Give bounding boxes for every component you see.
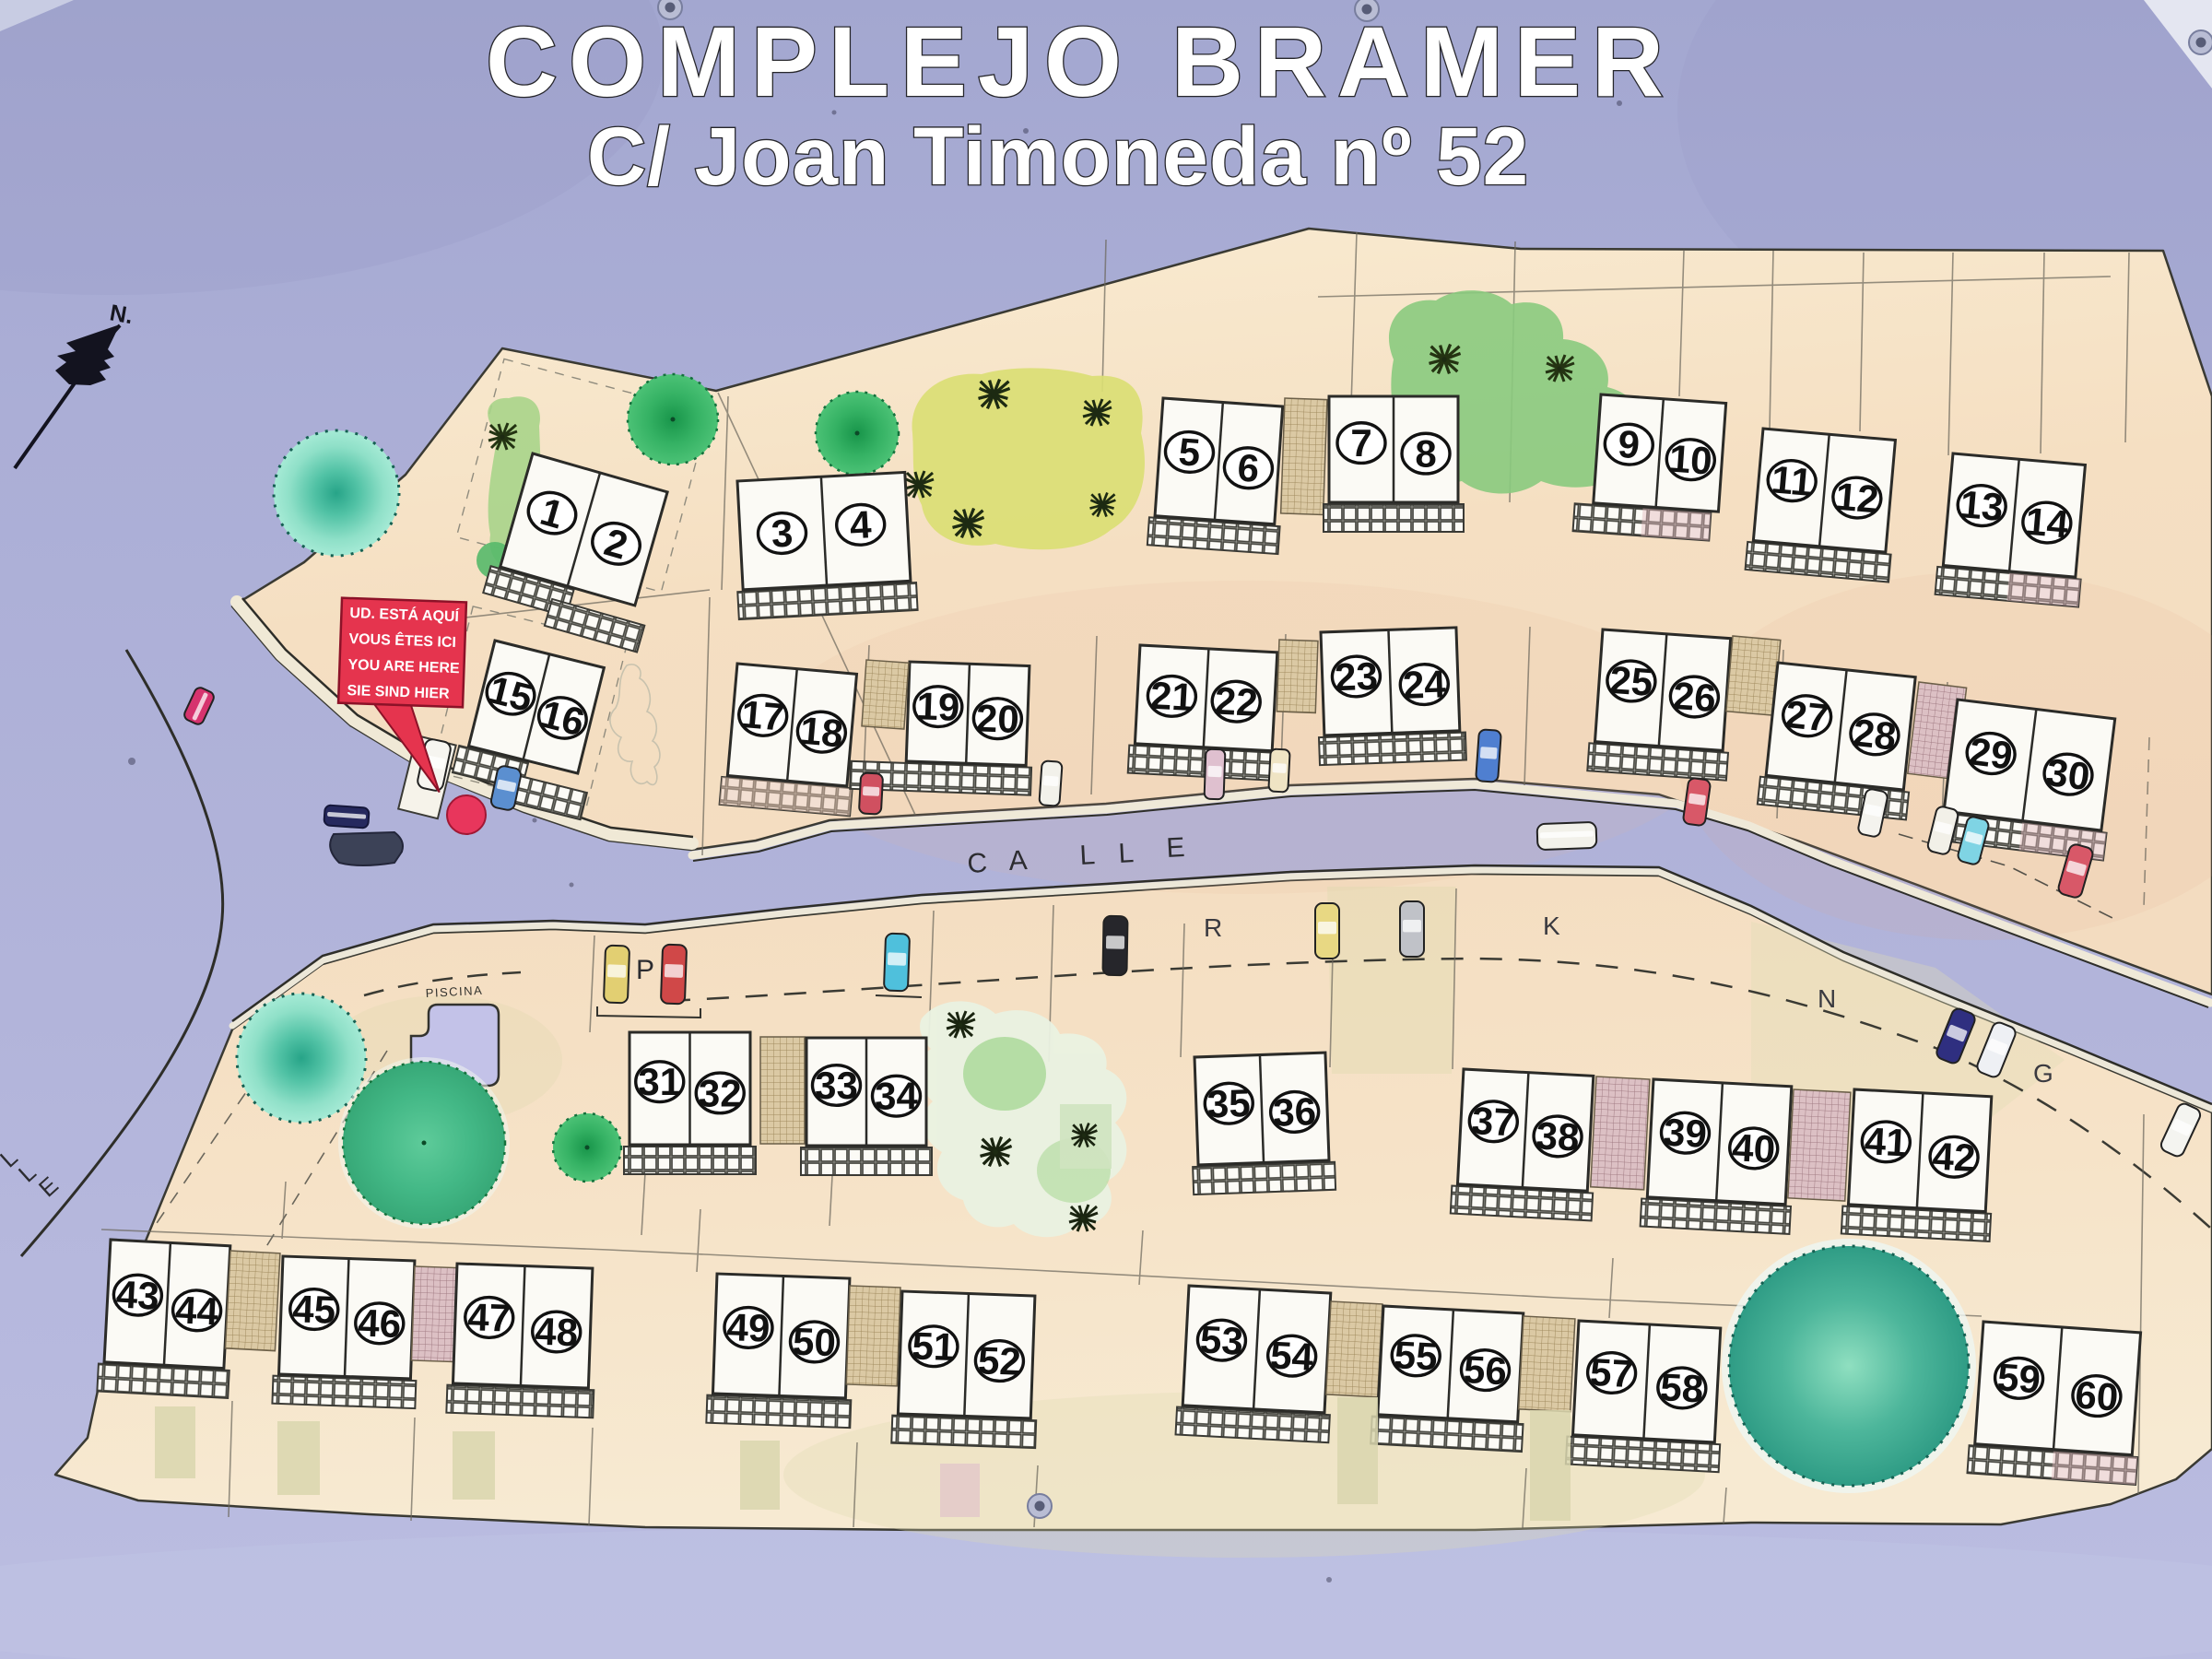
svg-text:58: 58 [1659, 1365, 1704, 1410]
svg-text:51: 51 [912, 1324, 956, 1369]
svg-text:7: 7 [1350, 421, 1371, 465]
svg-text:N.: N. [108, 300, 135, 329]
svg-text:G: G [2033, 1059, 2053, 1088]
svg-text:56: 56 [1463, 1347, 1508, 1393]
svg-text:21: 21 [1149, 674, 1194, 719]
svg-text:50: 50 [792, 1320, 836, 1365]
svg-text:52: 52 [977, 1338, 1021, 1383]
svg-text:33: 33 [815, 1064, 858, 1107]
svg-text:38: 38 [1535, 1113, 1581, 1159]
svg-text:28: 28 [1851, 711, 1898, 759]
svg-text:P: P [636, 955, 654, 985]
svg-text:24: 24 [1402, 662, 1447, 707]
svg-text:46: 46 [358, 1301, 402, 1347]
svg-text:26: 26 [1671, 674, 1717, 720]
svg-text:6: 6 [1236, 445, 1261, 490]
svg-text:53: 53 [1199, 1317, 1244, 1362]
svg-text:11: 11 [1770, 457, 1814, 504]
svg-text:19: 19 [916, 684, 960, 729]
svg-text:44: 44 [174, 1288, 220, 1333]
svg-text:49: 49 [726, 1305, 771, 1350]
svg-text:47: 47 [467, 1295, 512, 1340]
svg-text:K: K [1543, 912, 1560, 940]
svg-text:L: L [1079, 840, 1096, 871]
svg-text:20: 20 [975, 696, 1019, 741]
svg-text:9: 9 [1617, 422, 1641, 467]
svg-text:29: 29 [1967, 729, 2015, 777]
svg-text:C/ Joan Timoneda nº 52: C/ Joan Timoneda nº 52 [587, 110, 1529, 202]
svg-text:57: 57 [1589, 1350, 1634, 1395]
svg-text:R: R [1204, 913, 1222, 942]
svg-text:8: 8 [1415, 432, 1436, 476]
svg-text:C: C [967, 848, 988, 879]
svg-text:18: 18 [798, 709, 845, 756]
svg-text:23: 23 [1334, 654, 1378, 700]
svg-text:5: 5 [1177, 429, 1202, 475]
svg-text:12: 12 [1834, 475, 1881, 522]
svg-text:17: 17 [739, 692, 786, 739]
svg-text:55: 55 [1394, 1333, 1439, 1378]
svg-text:10: 10 [1667, 437, 1713, 483]
svg-text:42: 42 [1932, 1135, 1977, 1180]
svg-text:37: 37 [1471, 1099, 1516, 1144]
svg-text:22: 22 [1214, 678, 1259, 724]
svg-text:35: 35 [1206, 1081, 1251, 1126]
svg-text:COMPLEJO BRAMER: COMPLEJO BRAMER [486, 6, 1675, 117]
svg-text:60: 60 [2074, 1373, 2120, 1419]
svg-text:31: 31 [638, 1060, 681, 1103]
svg-text:A: A [1008, 845, 1029, 877]
svg-text:3: 3 [771, 511, 794, 555]
svg-text:59: 59 [1996, 1355, 2042, 1401]
svg-text:34: 34 [875, 1075, 918, 1118]
svg-text:39: 39 [1663, 1111, 1708, 1156]
svg-text:43: 43 [115, 1272, 160, 1317]
svg-text:30: 30 [2044, 750, 2092, 798]
svg-text:40: 40 [1731, 1125, 1776, 1171]
svg-text:E: E [1166, 832, 1186, 864]
svg-text:25: 25 [1608, 658, 1654, 704]
svg-text:41: 41 [1864, 1119, 1909, 1164]
svg-text:14: 14 [2024, 500, 2071, 547]
svg-text:45: 45 [292, 1287, 336, 1332]
svg-text:36: 36 [1272, 1089, 1316, 1135]
svg-text:L: L [1118, 838, 1135, 869]
svg-text:N: N [1818, 984, 1836, 1013]
svg-text:32: 32 [699, 1071, 742, 1114]
svg-text:54: 54 [1269, 1333, 1315, 1378]
svg-text:27: 27 [1783, 692, 1830, 740]
svg-text:48: 48 [535, 1310, 579, 1355]
svg-text:4: 4 [849, 502, 873, 547]
svg-text:13: 13 [1959, 482, 2006, 529]
